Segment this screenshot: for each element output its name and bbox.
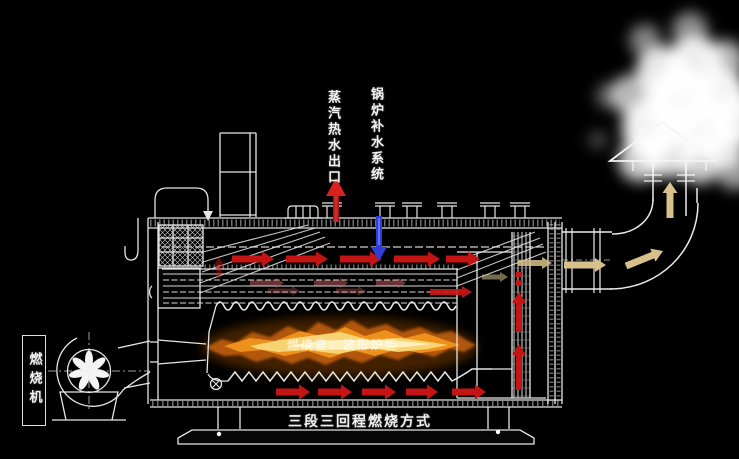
gauge-pipe: [125, 218, 138, 260]
boiler-diagram: 蒸汽热水出口 锅炉补水系统 燃烧机 三段三回程燃烧方式 燃烧室：波形炉胆: [0, 0, 739, 459]
burner-label-box: 燃烧机: [22, 335, 46, 426]
steam-cloud-icon: [588, 12, 739, 190]
recirculation-pipe: [155, 188, 213, 221]
burner-blower: [48, 332, 150, 420]
ladder-frame: [220, 133, 256, 217]
furnace-note-label: 燃烧室：波形炉胆: [287, 336, 399, 353]
diagram-canvas: [0, 0, 739, 459]
top-nozzles: [284, 203, 530, 218]
feedwater-system-label: 锅炉补水系统: [369, 87, 382, 183]
steam-outlet-label: 蒸汽热水出口: [326, 90, 339, 186]
burner-label: 燃烧机: [28, 352, 41, 409]
combustion-mode-label: 三段三回程燃烧方式: [278, 411, 442, 431]
flue-elbow: [562, 199, 698, 293]
